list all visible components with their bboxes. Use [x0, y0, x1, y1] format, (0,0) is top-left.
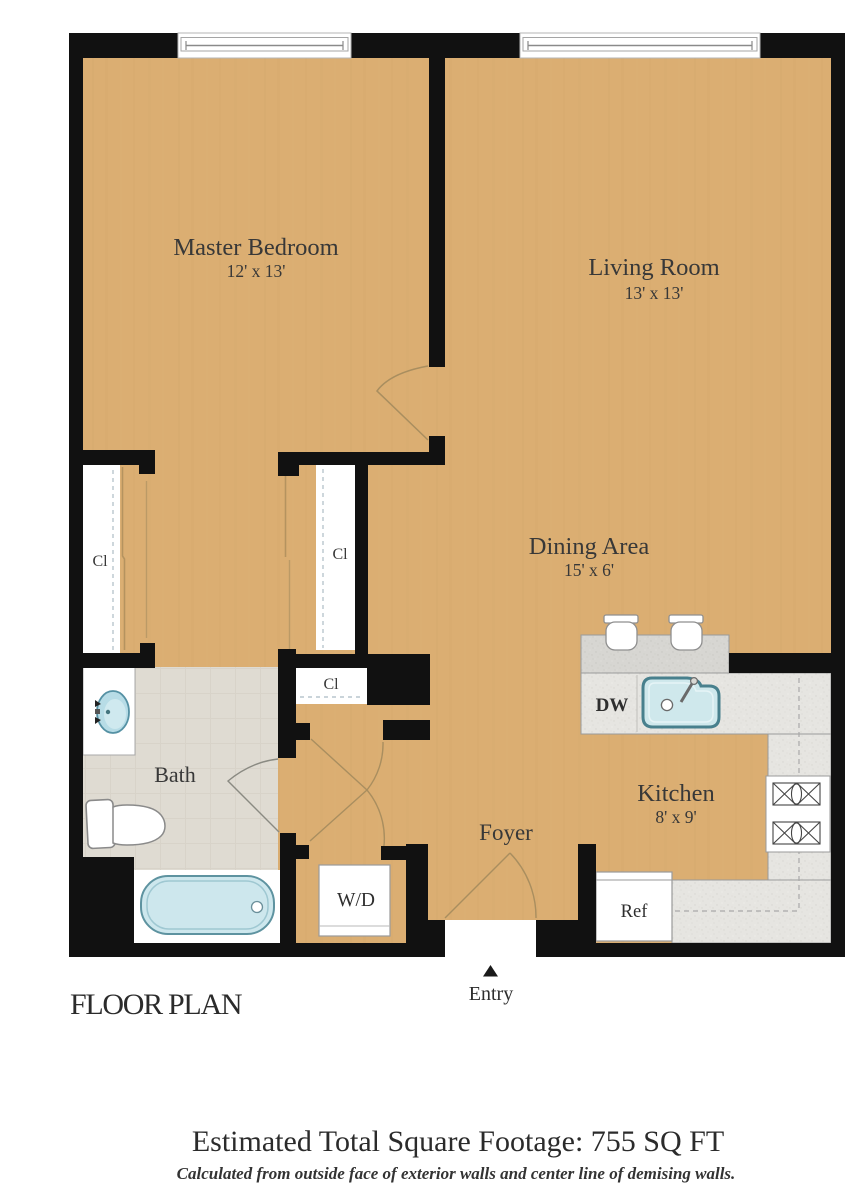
svg-text:FLOOR PLAN: FLOOR PLAN: [70, 988, 242, 1021]
svg-text:Kitchen: Kitchen: [637, 780, 715, 807]
svg-text:Ref: Ref: [621, 902, 649, 922]
svg-text:Estimated Total Square Footage: Estimated Total Square Footage: 755 SQ F…: [192, 1125, 724, 1158]
svg-text:Bath: Bath: [154, 762, 196, 787]
svg-text:Master Bedroom: Master Bedroom: [173, 234, 338, 261]
svg-text:W/D: W/D: [337, 890, 375, 911]
svg-text:12' x 13': 12' x 13': [227, 261, 286, 281]
svg-text:Dining Area: Dining Area: [529, 533, 650, 560]
svg-text:Living Room: Living Room: [588, 254, 719, 281]
svg-text:Cl: Cl: [323, 676, 339, 693]
svg-text:8' x 9': 8' x 9': [655, 807, 696, 827]
svg-text:Entry: Entry: [469, 983, 513, 1005]
svg-text:15' x 6': 15' x 6': [564, 560, 614, 580]
svg-text:Cl: Cl: [92, 553, 108, 570]
svg-text:Calculated from outside face o: Calculated from outside face of exterior…: [177, 1164, 736, 1183]
svg-text:DW: DW: [596, 695, 629, 716]
svg-text:Cl: Cl: [332, 546, 348, 563]
svg-text:13' x 13': 13' x 13': [625, 283, 684, 303]
svg-text:Foyer: Foyer: [479, 820, 533, 845]
